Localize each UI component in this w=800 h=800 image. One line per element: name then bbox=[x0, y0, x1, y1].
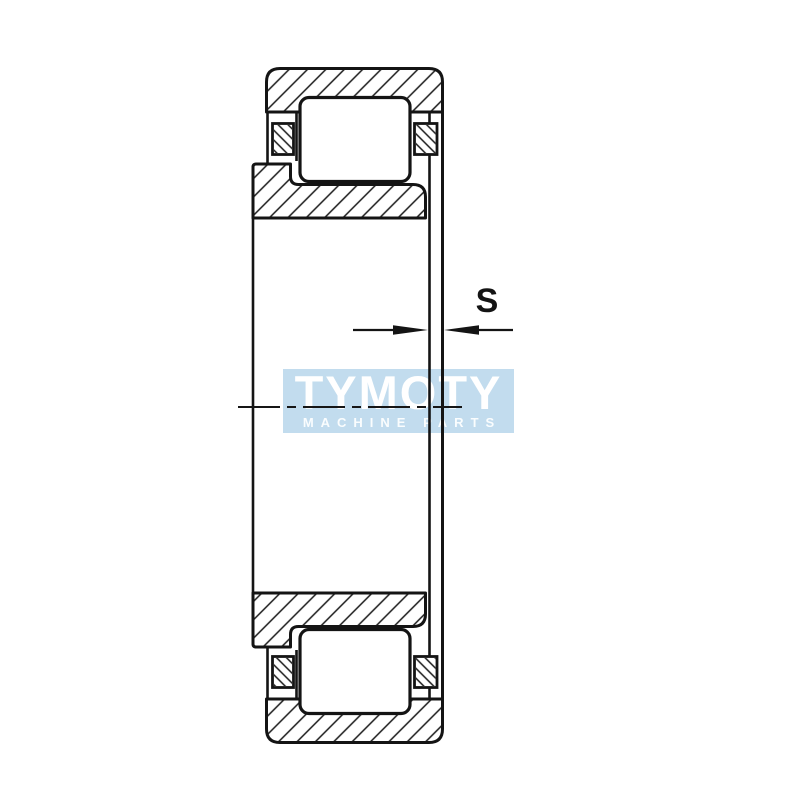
bearing-cross-section-drawing bbox=[0, 0, 800, 800]
bearing-drawing-page: TYMOTY MACHINE PARTS bbox=[0, 0, 800, 800]
inner-ring-section bbox=[253, 164, 426, 647]
dimension-arrows bbox=[353, 325, 513, 335]
dimension-label-s: S bbox=[471, 284, 503, 318]
